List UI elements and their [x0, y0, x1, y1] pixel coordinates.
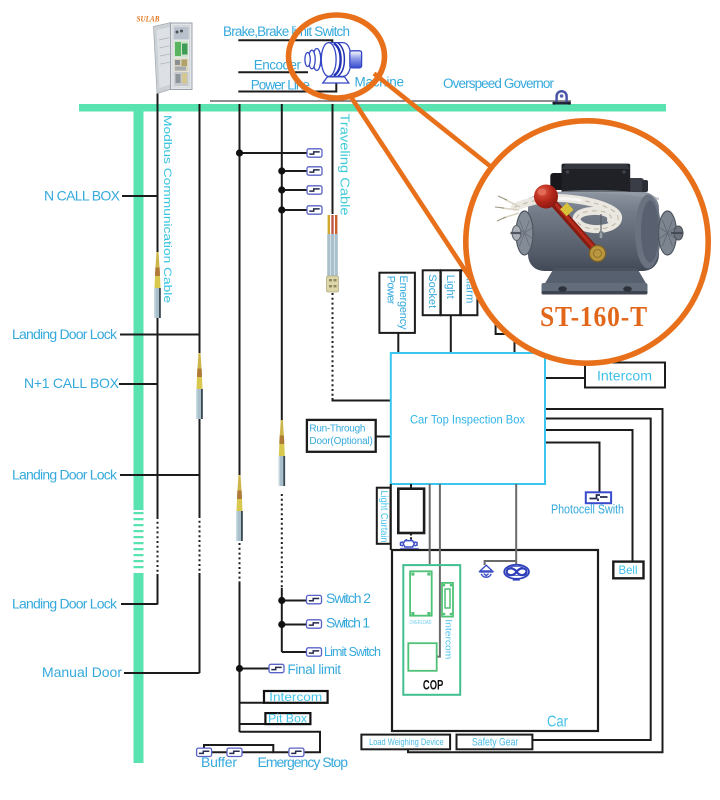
- svg-text:Intercom: Intercom: [269, 692, 322, 704]
- svg-text:Emergency Stop: Emergency Stop: [258, 754, 349, 770]
- svg-text:Socket: Socket: [426, 274, 438, 308]
- svg-text:Brake,Brake limit Switch: Brake,Brake limit Switch: [223, 24, 350, 39]
- svg-text:Landing Door Lock: Landing Door Lock: [12, 326, 118, 342]
- svg-text:Traveling Cable: Traveling Cable: [338, 114, 353, 216]
- svg-text:SULAB: SULAB: [137, 14, 160, 24]
- svg-text:Light Curtain: Light Curtain: [378, 491, 389, 543]
- svg-text:Buffer: Buffer: [201, 754, 237, 770]
- svg-text:Emergency: Emergency: [397, 276, 409, 331]
- svg-text:Manual Door: Manual Door: [42, 664, 122, 680]
- svg-text:Encoder: Encoder: [254, 58, 302, 73]
- svg-text:ST-160-T: ST-160-T: [540, 301, 648, 333]
- svg-text:Modbus Communication Cable: Modbus Communication Cable: [161, 115, 173, 303]
- svg-text:COP: COP: [423, 677, 443, 692]
- svg-text:Intercom: Intercom: [597, 369, 652, 384]
- svg-text:Light: Light: [444, 275, 456, 299]
- svg-text:Landing Door Lock: Landing Door Lock: [12, 467, 118, 483]
- svg-text:Intercom: Intercom: [442, 619, 453, 659]
- svg-text:Load Weighing Device: Load Weighing Device: [369, 737, 444, 748]
- svg-text:Safety Gear: Safety Gear: [472, 736, 519, 748]
- svg-text:Switch 2: Switch 2: [326, 590, 371, 606]
- svg-text:N+1 CALL BOX: N+1 CALL BOX: [24, 375, 120, 391]
- svg-text:N CALL BOX: N CALL BOX: [44, 188, 121, 204]
- svg-text:Door(Optional): Door(Optional): [309, 436, 373, 447]
- svg-text:Photocell Swith: Photocell Swith: [551, 503, 624, 517]
- svg-text:Power: Power: [384, 276, 396, 305]
- svg-text:OVERLOAD: OVERLOAD: [410, 620, 432, 626]
- svg-text:Car Top Inspection Box: Car Top Inspection Box: [410, 413, 525, 427]
- svg-text:Run-Through: Run-Through: [309, 424, 365, 435]
- svg-text:Final limit: Final limit: [288, 662, 342, 677]
- svg-text:Pit Box: Pit Box: [268, 713, 307, 725]
- svg-text:Car: Car: [547, 714, 568, 731]
- svg-text:Landing Door Lock: Landing Door Lock: [12, 596, 118, 612]
- svg-text:Limit Switch: Limit Switch: [324, 645, 381, 659]
- svg-text:Switch 1: Switch 1: [326, 614, 370, 630]
- svg-text:Overspeed Governor: Overspeed Governor: [443, 76, 555, 91]
- svg-text:Bell: Bell: [619, 563, 638, 577]
